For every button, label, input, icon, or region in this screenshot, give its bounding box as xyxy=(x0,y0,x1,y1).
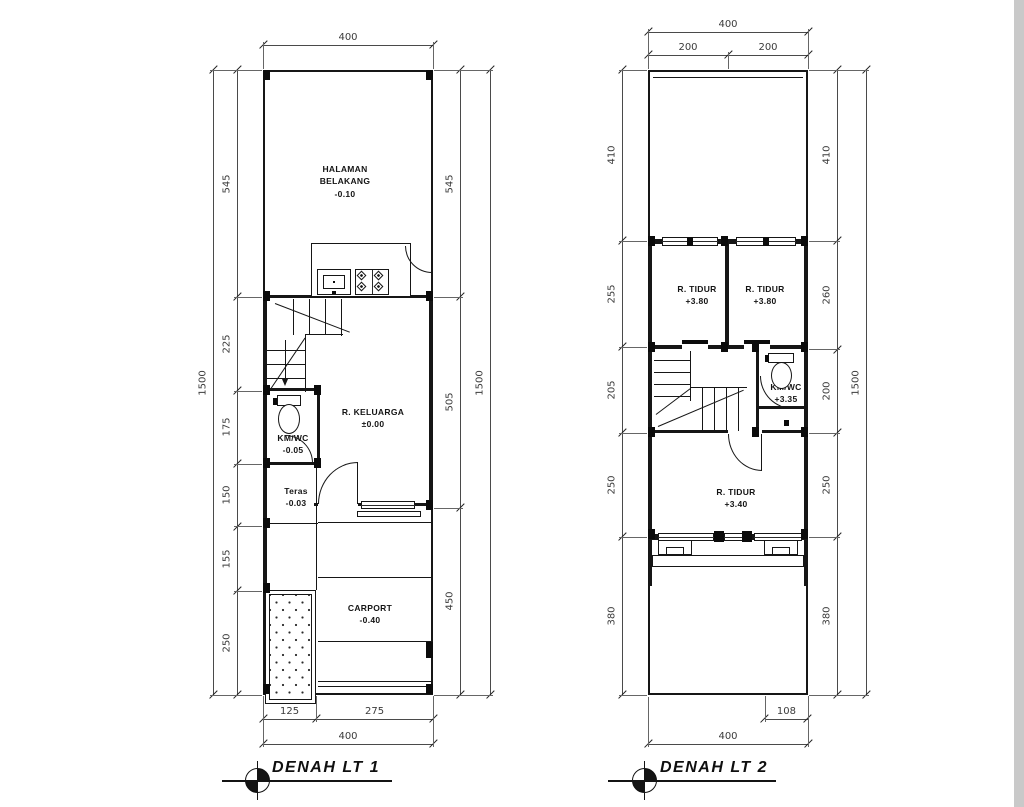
wall xyxy=(263,70,433,72)
dimension-line xyxy=(263,719,433,720)
window-edge-strip xyxy=(1014,0,1024,807)
dimension-witness-line xyxy=(433,42,434,69)
dimension-label: 410 xyxy=(607,146,618,165)
dimension-witness-line xyxy=(434,297,463,298)
dimension-label: 380 xyxy=(607,606,618,625)
title-underline-lt2 xyxy=(608,780,776,782)
dimension-witness-line xyxy=(619,347,647,348)
column-block xyxy=(721,236,728,246)
dimension-label: 260 xyxy=(822,285,833,304)
column-block xyxy=(801,342,808,352)
dimension-witness-line xyxy=(648,52,649,69)
stair-tread xyxy=(654,396,690,397)
stair-tread xyxy=(690,351,691,401)
dimension-label: 450 xyxy=(445,592,456,611)
room-label-r-tidur-1: R. TIDUR+3.80 xyxy=(677,283,716,308)
dimension-line xyxy=(837,70,838,695)
dimension-label: 380 xyxy=(822,606,833,625)
mullion-line xyxy=(361,505,415,506)
dimension-witness-line xyxy=(808,697,809,747)
wall xyxy=(318,641,431,642)
dimension-label: 400 xyxy=(338,731,357,742)
dimension-witness-line xyxy=(435,70,493,71)
window-mullion xyxy=(763,237,769,246)
room-label-carport: CARPORT-0.40 xyxy=(348,602,392,627)
stair-cut-line xyxy=(275,303,350,333)
wall xyxy=(316,466,317,590)
fixture-detail xyxy=(273,398,277,405)
fixture-detail xyxy=(784,420,789,426)
wall xyxy=(804,237,808,540)
dimension-label: 225 xyxy=(222,334,233,353)
door-swing-arc xyxy=(728,434,762,471)
dimension-witness-line xyxy=(809,695,869,696)
column-block xyxy=(426,291,433,301)
dimension-witness-line xyxy=(619,241,647,242)
wall xyxy=(263,523,318,524)
column-block xyxy=(426,70,433,80)
dimension-line xyxy=(237,70,238,695)
wall xyxy=(341,299,342,336)
wall xyxy=(317,388,320,468)
dimension-label: 400 xyxy=(718,731,737,742)
dimension-witness-line xyxy=(433,697,434,747)
door-swing-arc xyxy=(318,462,358,504)
stair-cut-line xyxy=(656,388,691,415)
column-block xyxy=(742,531,752,542)
dimension-label: 205 xyxy=(607,380,618,399)
stair-tread xyxy=(714,388,715,431)
dimension-label: 250 xyxy=(822,475,833,494)
dimension-label: 505 xyxy=(445,393,456,412)
dimension-label: 1500 xyxy=(851,370,862,395)
wall xyxy=(653,77,803,78)
garden-stipple xyxy=(269,594,312,700)
dimension-witness-line xyxy=(765,696,766,722)
dimension-witness-line xyxy=(434,508,463,509)
column-block xyxy=(263,385,270,395)
stair-tread xyxy=(654,372,690,373)
dimension-line xyxy=(213,70,214,695)
dimension-label: 155 xyxy=(222,549,233,568)
mullion-line xyxy=(658,537,714,538)
dimension-label: 150 xyxy=(222,485,233,504)
column-block xyxy=(263,583,270,593)
wall xyxy=(725,241,729,347)
column-block xyxy=(752,427,759,437)
balcony-planter xyxy=(772,547,790,555)
dimension-witness-line xyxy=(234,464,262,465)
dimension-label: 1500 xyxy=(198,370,209,395)
wall xyxy=(648,693,808,695)
column-block xyxy=(714,531,724,542)
mullion-line xyxy=(724,537,744,538)
column-block xyxy=(648,342,655,352)
dimension-line xyxy=(263,744,433,745)
wall xyxy=(318,681,431,682)
dimension-witness-line xyxy=(234,591,262,592)
dimension-label: 108 xyxy=(777,706,796,717)
column-block xyxy=(648,529,655,539)
column-block xyxy=(801,529,808,539)
balcony-planter xyxy=(652,555,804,567)
dimension-witness-line xyxy=(809,70,869,71)
column-block xyxy=(801,236,808,246)
wall xyxy=(305,334,306,392)
dimension-label: 175 xyxy=(222,418,233,437)
door-swing-arc xyxy=(285,435,313,463)
room-label-r-tidur-3: R. TIDUR+3.40 xyxy=(716,486,755,511)
column-block xyxy=(263,291,270,301)
dimension-witness-line xyxy=(619,433,647,434)
wall xyxy=(263,295,267,595)
dimension-witness-line xyxy=(809,537,840,538)
dimension-label: 200 xyxy=(678,42,697,53)
balcony-planter xyxy=(666,547,684,555)
column-block xyxy=(752,342,759,352)
dimension-label: 255 xyxy=(607,284,618,303)
mullion-line xyxy=(372,270,373,294)
stair-tread xyxy=(738,388,739,431)
dimension-witness-line xyxy=(619,537,647,538)
room-label-halaman-belakang: HALAMANBELAKANG-0.10 xyxy=(320,163,371,200)
door-leaf xyxy=(682,340,708,344)
dimension-witness-line xyxy=(808,52,809,69)
stair-tread xyxy=(726,388,727,431)
dimension-label: 545 xyxy=(222,174,233,193)
dimension-label: 200 xyxy=(822,381,833,400)
dimension-line xyxy=(490,70,491,695)
dimension-witness-line xyxy=(234,297,262,298)
column-block xyxy=(426,500,433,510)
wall xyxy=(305,334,343,335)
door-opening xyxy=(682,344,708,350)
dimension-label: 1500 xyxy=(475,370,486,395)
column-block xyxy=(263,70,270,80)
plan-lt1: HALAMANBELAKANG-0.10 DAPUR-0.03 R. KELUA… xyxy=(263,70,433,695)
dimension-label: 400 xyxy=(718,19,737,30)
dimension-line xyxy=(866,70,867,695)
wall xyxy=(648,345,808,349)
dimension-label: 275 xyxy=(365,706,384,717)
dimension-label: 545 xyxy=(445,174,456,193)
wall xyxy=(804,540,808,586)
mullion-line xyxy=(754,537,802,538)
wall xyxy=(325,299,326,335)
stair-tread xyxy=(702,388,703,431)
stair-tread xyxy=(654,384,690,385)
dimension-label: 200 xyxy=(758,42,777,53)
plan-title-lt2: DENAH LT 2 xyxy=(660,759,768,777)
dimension-line xyxy=(648,744,808,745)
door-swing-arc xyxy=(760,376,793,409)
plan-lt2: R. TIDUR+3.80 R. TIDUR+3.80 KM/WC+3.35 R… xyxy=(648,70,808,695)
wall xyxy=(756,347,759,432)
fixture-detail xyxy=(765,355,769,362)
stair-tread xyxy=(654,360,690,361)
toilet-bowl-symbol xyxy=(278,404,300,434)
fixture-detail xyxy=(332,291,336,294)
dimension-label: 410 xyxy=(822,146,833,165)
column-block xyxy=(263,684,270,694)
wall xyxy=(318,522,431,523)
window-sill xyxy=(357,511,421,517)
wall xyxy=(318,686,431,687)
column-block xyxy=(648,236,655,246)
column-block xyxy=(721,342,728,352)
dimension-label: 125 xyxy=(280,706,299,717)
column-block xyxy=(648,427,655,437)
column-block xyxy=(263,518,270,528)
dimension-witness-line xyxy=(263,42,264,69)
wall xyxy=(648,70,808,72)
dimension-witness-line xyxy=(728,52,729,69)
dimension-line xyxy=(460,70,461,695)
dimension-witness-line xyxy=(263,697,264,747)
dimension-witness-line xyxy=(648,697,649,747)
dimension-witness-line xyxy=(619,695,647,696)
room-label-r-tidur-2: R. TIDUR+3.80 xyxy=(745,283,784,308)
column-block xyxy=(801,427,808,437)
wall xyxy=(318,577,431,578)
window-mullion xyxy=(687,237,693,246)
dimension-witness-line xyxy=(234,695,262,696)
dimension-line xyxy=(622,70,623,695)
dimension-witness-line xyxy=(435,695,493,696)
fixture-detail xyxy=(333,281,335,283)
wall xyxy=(648,237,652,540)
column-block xyxy=(263,458,270,468)
dimension-line xyxy=(263,45,433,46)
room-label-teras: Teras-0.03 xyxy=(284,485,308,510)
dimension-label: 400 xyxy=(338,32,357,43)
wall xyxy=(293,299,294,335)
dimension-witness-line xyxy=(809,349,840,350)
dimension-witness-line xyxy=(316,696,317,722)
dimension-witness-line xyxy=(234,70,262,71)
plan-title-lt1: DENAH LT 1 xyxy=(272,759,380,777)
dimension-witness-line xyxy=(809,433,840,434)
column-block xyxy=(314,458,321,468)
dimension-witness-line xyxy=(619,70,647,71)
stair-direction-arrow-icon xyxy=(282,379,288,386)
dimension-witness-line xyxy=(234,391,262,392)
dimension-witness-line xyxy=(809,241,840,242)
dimension-line xyxy=(765,719,808,720)
room-label-r-keluarga: R. KELUARGA±0.00 xyxy=(342,406,404,431)
dimension-witness-line xyxy=(234,526,262,527)
column-block xyxy=(426,642,433,658)
wall xyxy=(285,340,286,380)
dimension-line xyxy=(648,32,808,33)
column-block xyxy=(426,684,433,694)
floor-plan-sheet: HALAMANBELAKANG-0.10 DAPUR-0.03 R. KELUA… xyxy=(0,0,1024,807)
title-underline-lt1 xyxy=(222,780,392,782)
dimension-label: 250 xyxy=(222,633,233,652)
column-block xyxy=(314,385,321,395)
dimension-label: 250 xyxy=(607,475,618,494)
wall xyxy=(429,295,433,507)
